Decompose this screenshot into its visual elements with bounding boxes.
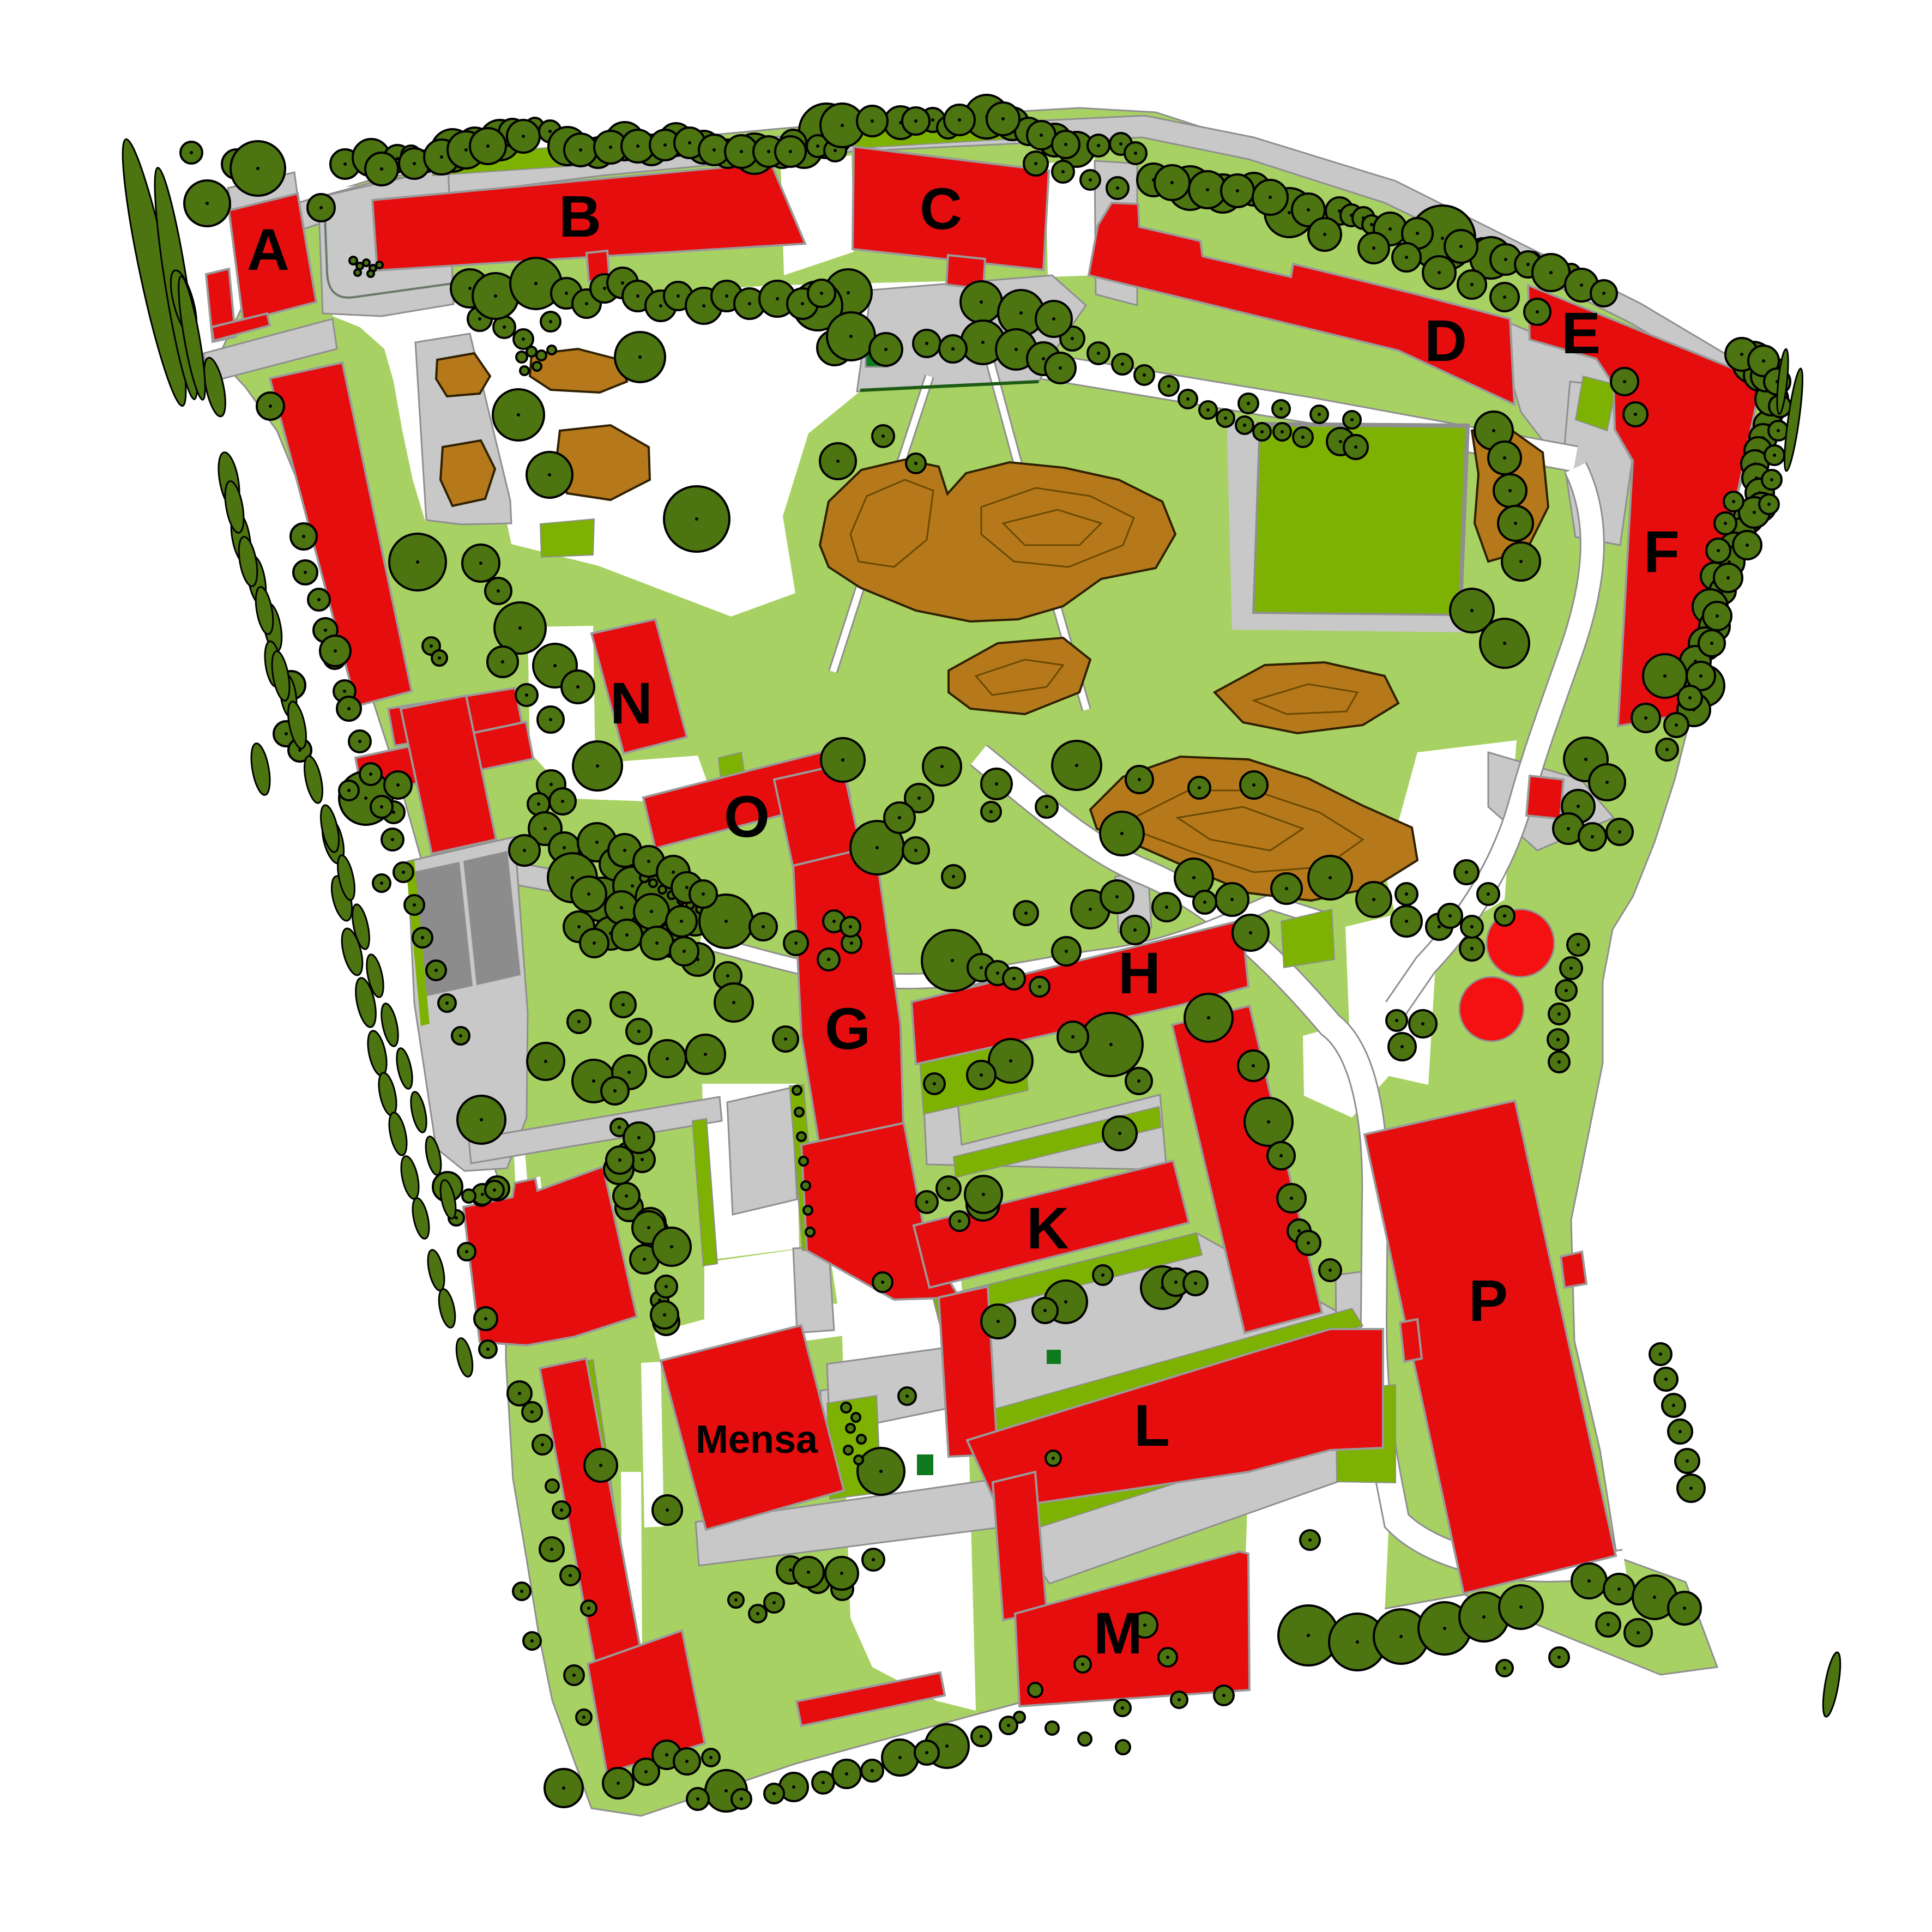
svg-text:A: A <box>247 216 289 282</box>
svg-text:O: O <box>724 783 770 849</box>
svg-text:M: M <box>1094 1600 1143 1666</box>
svg-text:C: C <box>920 176 962 241</box>
svg-text:H: H <box>1118 940 1161 1006</box>
svg-text:P: P <box>1469 1267 1508 1333</box>
svg-text:B: B <box>559 183 601 249</box>
svg-text:F: F <box>1644 518 1680 584</box>
svg-text:E: E <box>1561 300 1601 366</box>
svg-text:N: N <box>610 670 653 736</box>
svg-text:L: L <box>1134 1392 1170 1458</box>
svg-text:K: K <box>1027 1195 1069 1261</box>
svg-text:Mensa: Mensa <box>696 1418 818 1462</box>
svg-text:G: G <box>825 995 871 1061</box>
svg-text:D: D <box>1424 307 1467 373</box>
